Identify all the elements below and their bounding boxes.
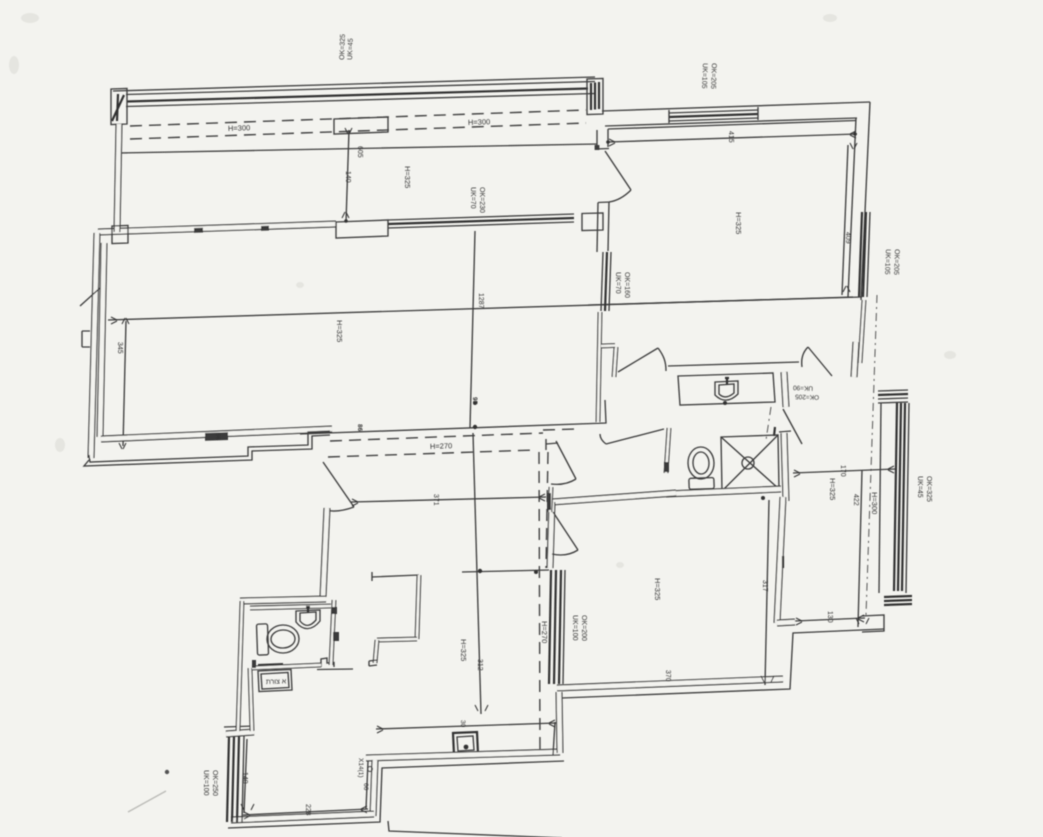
svg-text:H=325: H=325 [459,639,468,661]
svg-text:OK=230: OK=230 [478,187,485,213]
svg-text:H=300: H=300 [468,117,491,127]
svg-text:OK=250: OK=250 [211,770,218,796]
svg-text:317: 317 [761,580,768,592]
svg-text:UK=105: UK=105 [700,63,708,89]
svg-text:UK=70: UK=70 [614,272,621,294]
svg-text:30: 30 [459,720,466,728]
svg-text:UK=90: UK=90 [793,384,814,392]
svg-text:86: 86 [356,424,363,432]
svg-text:140: 140 [344,171,351,183]
svg-text:א צורת: א צורת [266,678,287,686]
svg-text:130: 130 [826,611,833,623]
svg-text:370: 370 [664,670,671,682]
svg-text:H=300: H=300 [870,492,879,514]
svg-text:H=325: H=325 [828,478,837,500]
svg-text:312: 312 [476,659,483,671]
svg-text:H=325: H=325 [734,212,743,234]
svg-text:140: 140 [241,772,248,784]
svg-text:UK=45: UK=45 [916,476,923,498]
svg-text:OK=205: OK=205 [892,249,900,275]
svg-text:95: 95 [471,397,478,405]
svg-text:UK=70: UK=70 [469,187,476,209]
svg-text:UK=105: UK=105 [883,249,891,275]
svg-text:422: 422 [852,494,859,506]
svg-text:UK=100: UK=100 [571,615,578,641]
svg-text:OK=325: OK=325 [925,476,932,502]
svg-text:OK=200: OK=200 [580,615,587,641]
svg-text:96: 96 [214,433,221,441]
svg-text:228: 228 [304,804,311,816]
svg-text:OK=325: OK=325 [339,34,347,60]
svg-text:OK=160: OK=160 [623,272,630,298]
svg-text:66: 66 [362,783,369,791]
svg-text:H=300: H=300 [228,123,251,133]
svg-text:371: 371 [432,494,439,506]
svg-text:UK=45: UK=45 [347,38,355,60]
svg-text:170: 170 [839,465,846,477]
svg-text:H=270: H=270 [430,441,453,451]
svg-text:605: 605 [356,146,363,158]
svg-text:OK=205: OK=205 [795,393,820,401]
svg-text:X14(1): X14(1) [357,758,364,778]
svg-text:H=270: H=270 [540,621,549,643]
svg-text:1287: 1287 [477,293,484,309]
svg-text:409: 409 [844,232,851,244]
svg-text:345: 345 [116,342,123,354]
svg-text:415: 415 [727,131,734,143]
svg-text:UK=100: UK=100 [202,770,209,796]
svg-text:H=325: H=325 [335,320,344,342]
svg-text:H=325: H=325 [403,166,412,188]
svg-text:OK=205: OK=205 [709,63,717,89]
svg-text:H=325: H=325 [653,578,662,600]
